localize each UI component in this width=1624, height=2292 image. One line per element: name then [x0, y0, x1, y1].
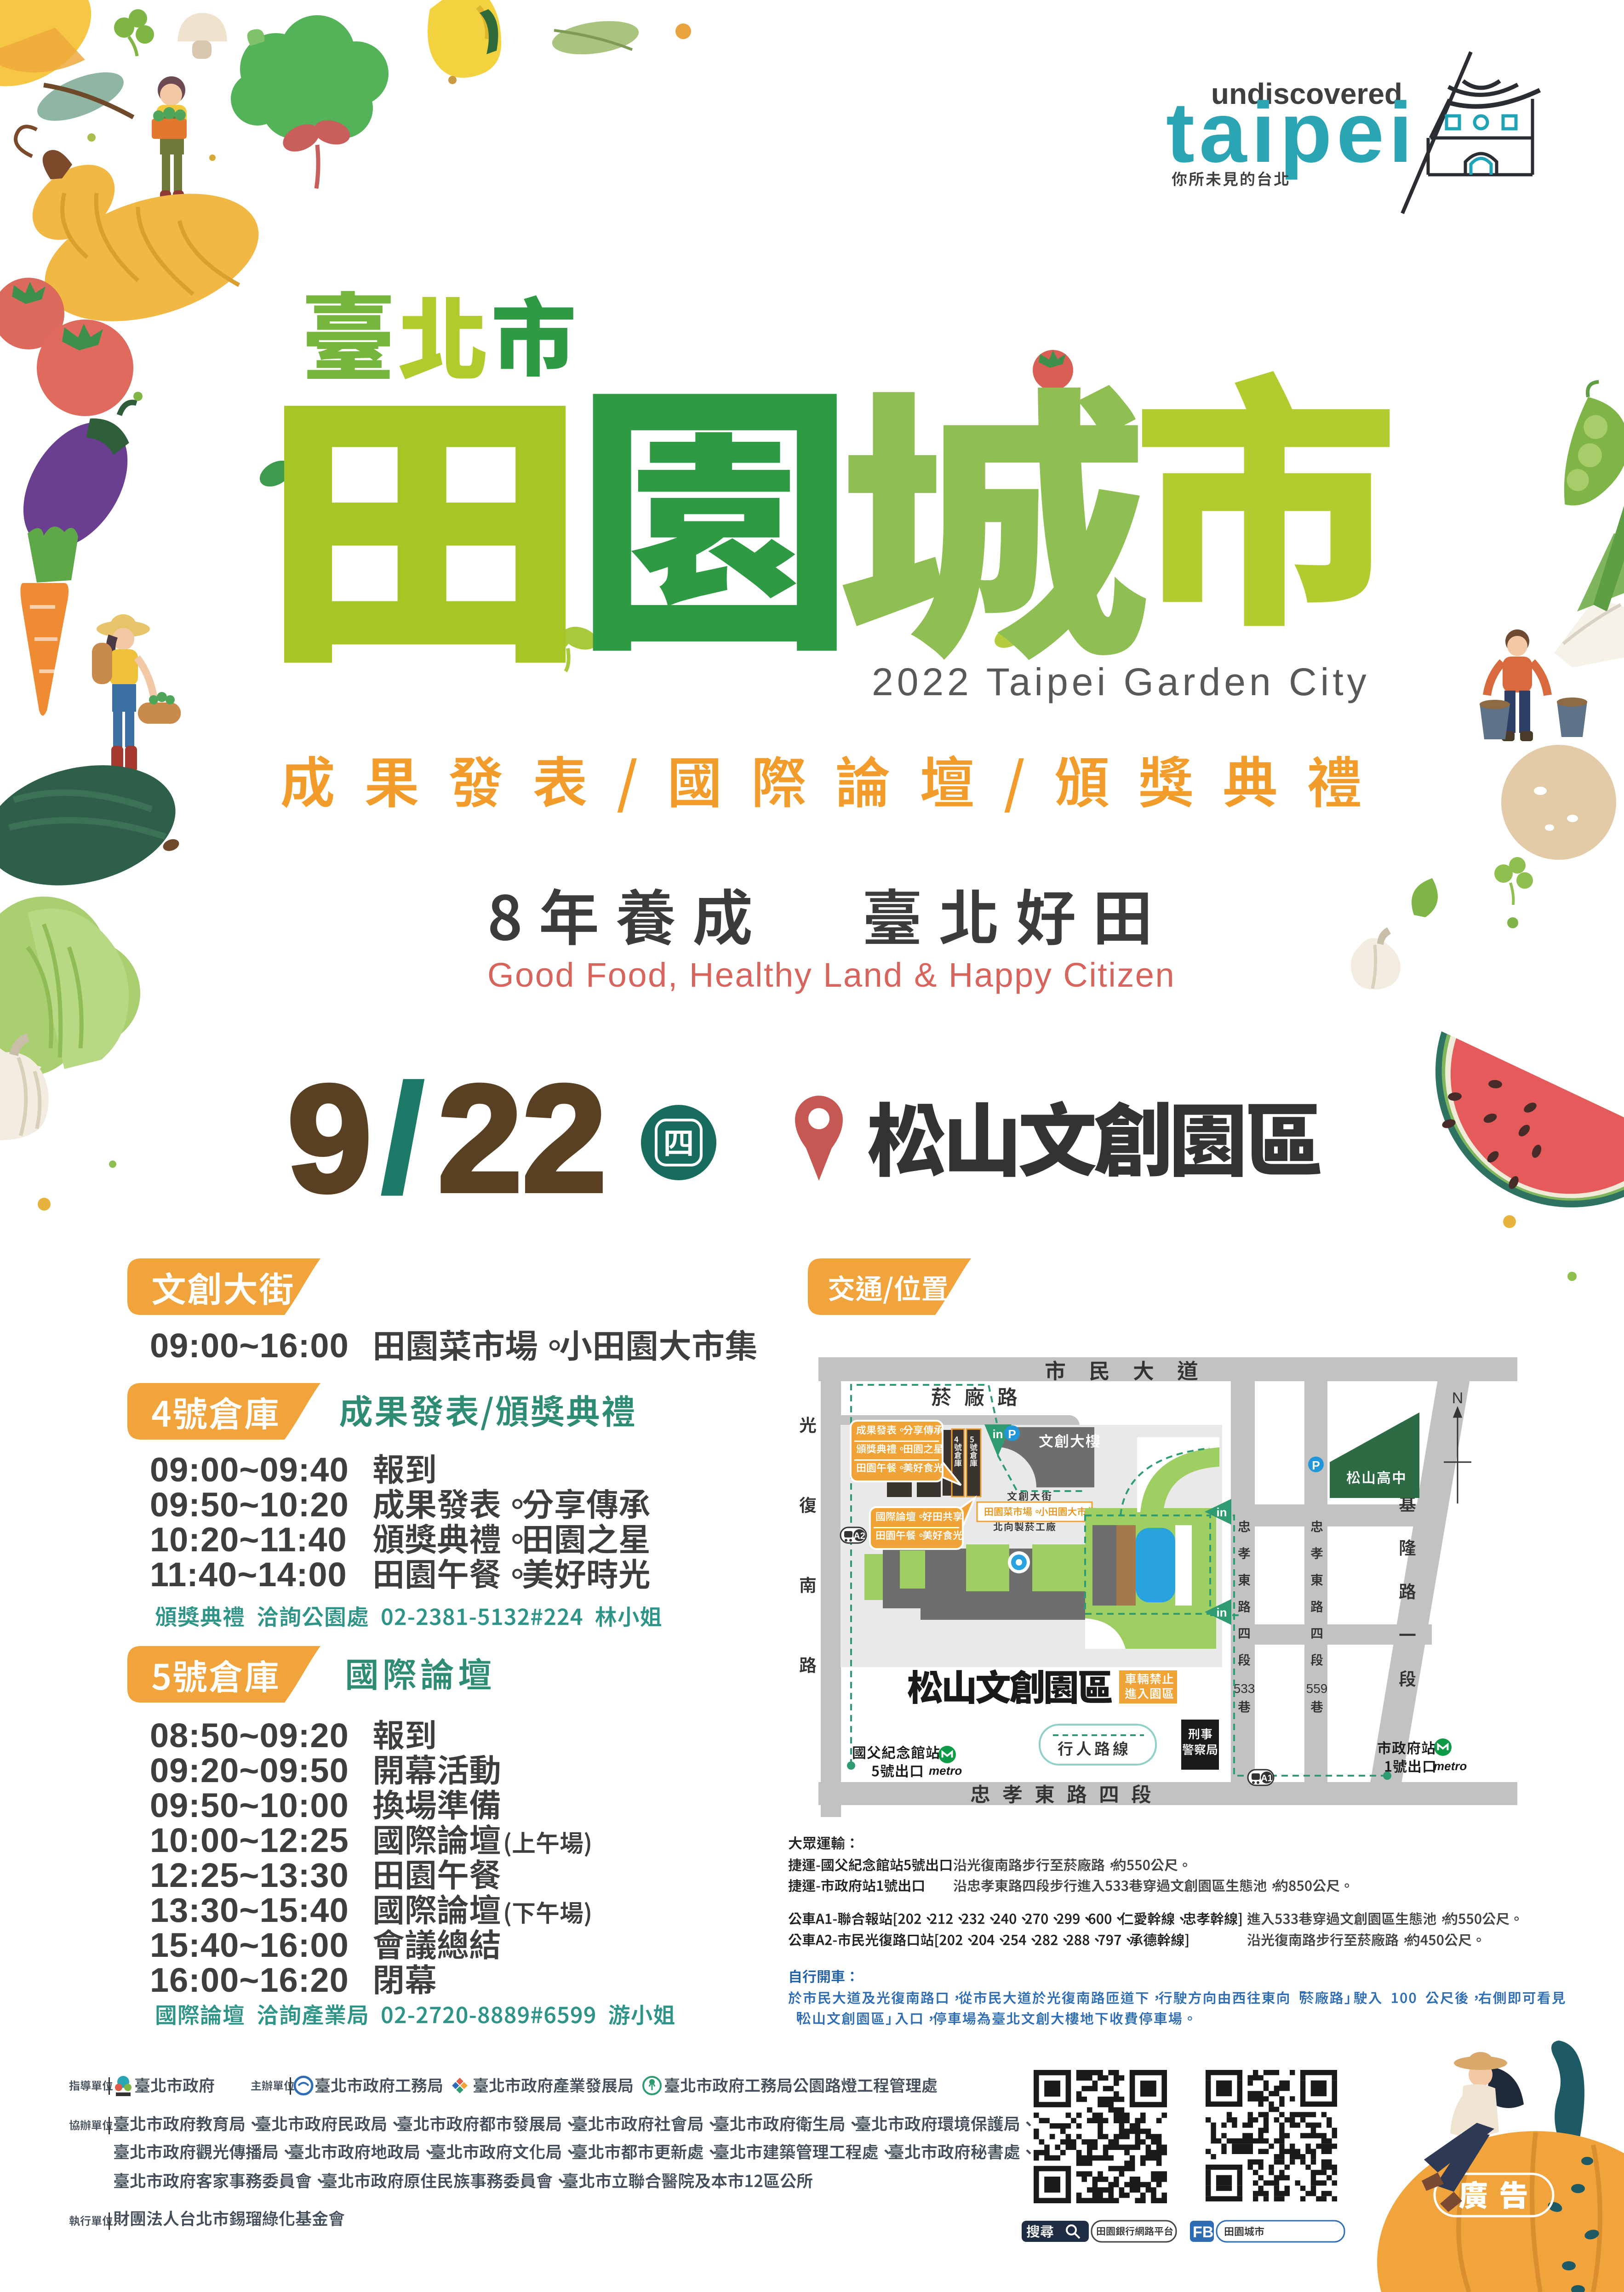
svg-text:09:20~09:50: 09:20~09:50 [150, 1751, 349, 1789]
svg-text:10:00~12:25: 10:00~12:25 [150, 1821, 349, 1859]
svg-text:15:40~16:00: 15:40~16:00 [150, 1926, 349, 1964]
svg-text:11:40~14:00: 11:40~14:00 [150, 1555, 347, 1594]
svg-text:FB: FB [1193, 2223, 1213, 2241]
svg-text:/: / [382, 1053, 424, 1223]
svg-text:13:30~15:40: 13:30~15:40 [150, 1891, 349, 1929]
svg-text:22: 22 [438, 1053, 606, 1223]
svg-text:Good Food, Healthy Land & Happ: Good Food, Healthy Land & Happy Citizen [487, 956, 1175, 994]
svg-text:09:50~10:00: 09:50~10:00 [150, 1786, 349, 1824]
svg-text:09:50~10:20: 09:50~10:20 [150, 1486, 349, 1524]
svg-text:16:00~16:20: 16:00~16:20 [150, 1961, 349, 1999]
svg-text:12:25~13:30: 12:25~13:30 [150, 1856, 349, 1894]
svg-text:in: in [1216, 1606, 1227, 1619]
svg-text:9: 9 [287, 1053, 372, 1223]
svg-text:09:00~16:00: 09:00~16:00 [150, 1326, 349, 1365]
svg-text:A2: A2 [853, 1531, 865, 1541]
svg-text:P: P [1312, 1458, 1320, 1472]
svg-text:2022 Taipei Garden City: 2022 Taipei Garden City [872, 660, 1370, 703]
svg-text:metro: metro [1434, 1759, 1467, 1773]
svg-text:10:20~11:40: 10:20~11:40 [150, 1520, 347, 1559]
svg-text:N: N [1452, 1389, 1464, 1407]
svg-text:P: P [1008, 1427, 1016, 1441]
svg-text:A1: A1 [1261, 1773, 1273, 1783]
svg-text:in: in [992, 1427, 1003, 1441]
svg-text:taipei: taipei [1166, 85, 1417, 180]
svg-text:08:50~09:20: 08:50~09:20 [150, 1716, 349, 1755]
svg-text:in: in [1216, 1505, 1227, 1519]
svg-text:09:00~09:40: 09:00~09:40 [150, 1451, 349, 1489]
svg-text:533: 533 [1234, 1681, 1255, 1696]
svg-text:559: 559 [1306, 1681, 1328, 1696]
svg-text:metro: metro [929, 1764, 962, 1778]
